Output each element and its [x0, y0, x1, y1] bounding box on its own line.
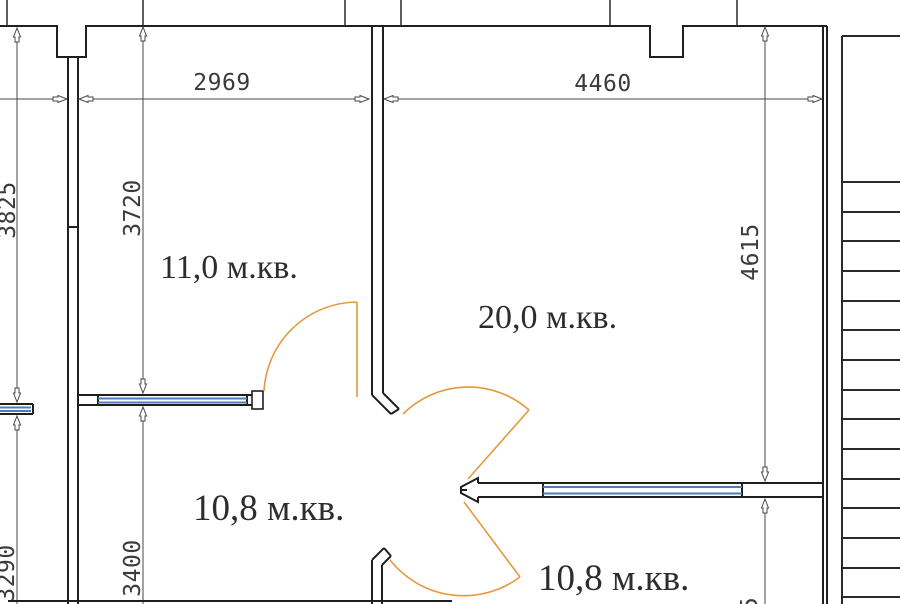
stair-treads [842, 182, 900, 597]
centre-wall [372, 26, 399, 414]
dim-label-2969: 2969 [193, 70, 250, 96]
walls [0, 0, 827, 604]
window-room11 [98, 399, 247, 403]
dim-label-4460: 4460 [574, 71, 631, 97]
room-label-11: 11,0 м.кв. [160, 249, 298, 286]
dim-label-3720: 3720 [120, 179, 146, 236]
dimension-lines [0, 27, 822, 604]
stair-outline [842, 36, 900, 604]
right-exterior-wall [823, 26, 827, 604]
window-room108-right [543, 487, 742, 494]
dim-label-bottom-right-partial: 5 [737, 597, 763, 604]
left-edge-wall [0, 404, 33, 414]
room-label-20: 20,0 м.кв. [478, 299, 617, 336]
floor-plan-drawing: 11,0 м.кв. 20,0 м.кв. 10,8 м.кв. 10,8 м.… [0, 0, 900, 604]
dim-label-4615: 4615 [738, 223, 764, 280]
room-label-108-right: 10,8 м.кв. [538, 558, 689, 599]
hall-bottom-wall [372, 548, 391, 604]
top-exterior-wall [0, 26, 827, 57]
door-room108 [390, 502, 520, 596]
dim-label-3290-partial: 3290 [0, 544, 20, 601]
door-room20 [403, 387, 529, 479]
door-jamb [252, 391, 263, 409]
window-left-edge [0, 408, 31, 412]
room-label-108-left: 10,8 м.кв. [193, 488, 344, 529]
windows [0, 399, 742, 494]
staircase [842, 36, 900, 604]
wall-joint-ticks [7, 0, 737, 26]
dim-label-3400: 3400 [120, 539, 146, 596]
dim-label-3825-partial: 3825 [0, 181, 21, 238]
left-interior-wall [68, 57, 78, 604]
room108-north-wall [461, 478, 823, 502]
door-room11 [264, 302, 357, 397]
floor-plan-page: 11,0 м.кв. 20,0 м.кв. 10,8 м.кв. 10,8 м.… [0, 0, 900, 604]
door-swings [264, 302, 529, 596]
